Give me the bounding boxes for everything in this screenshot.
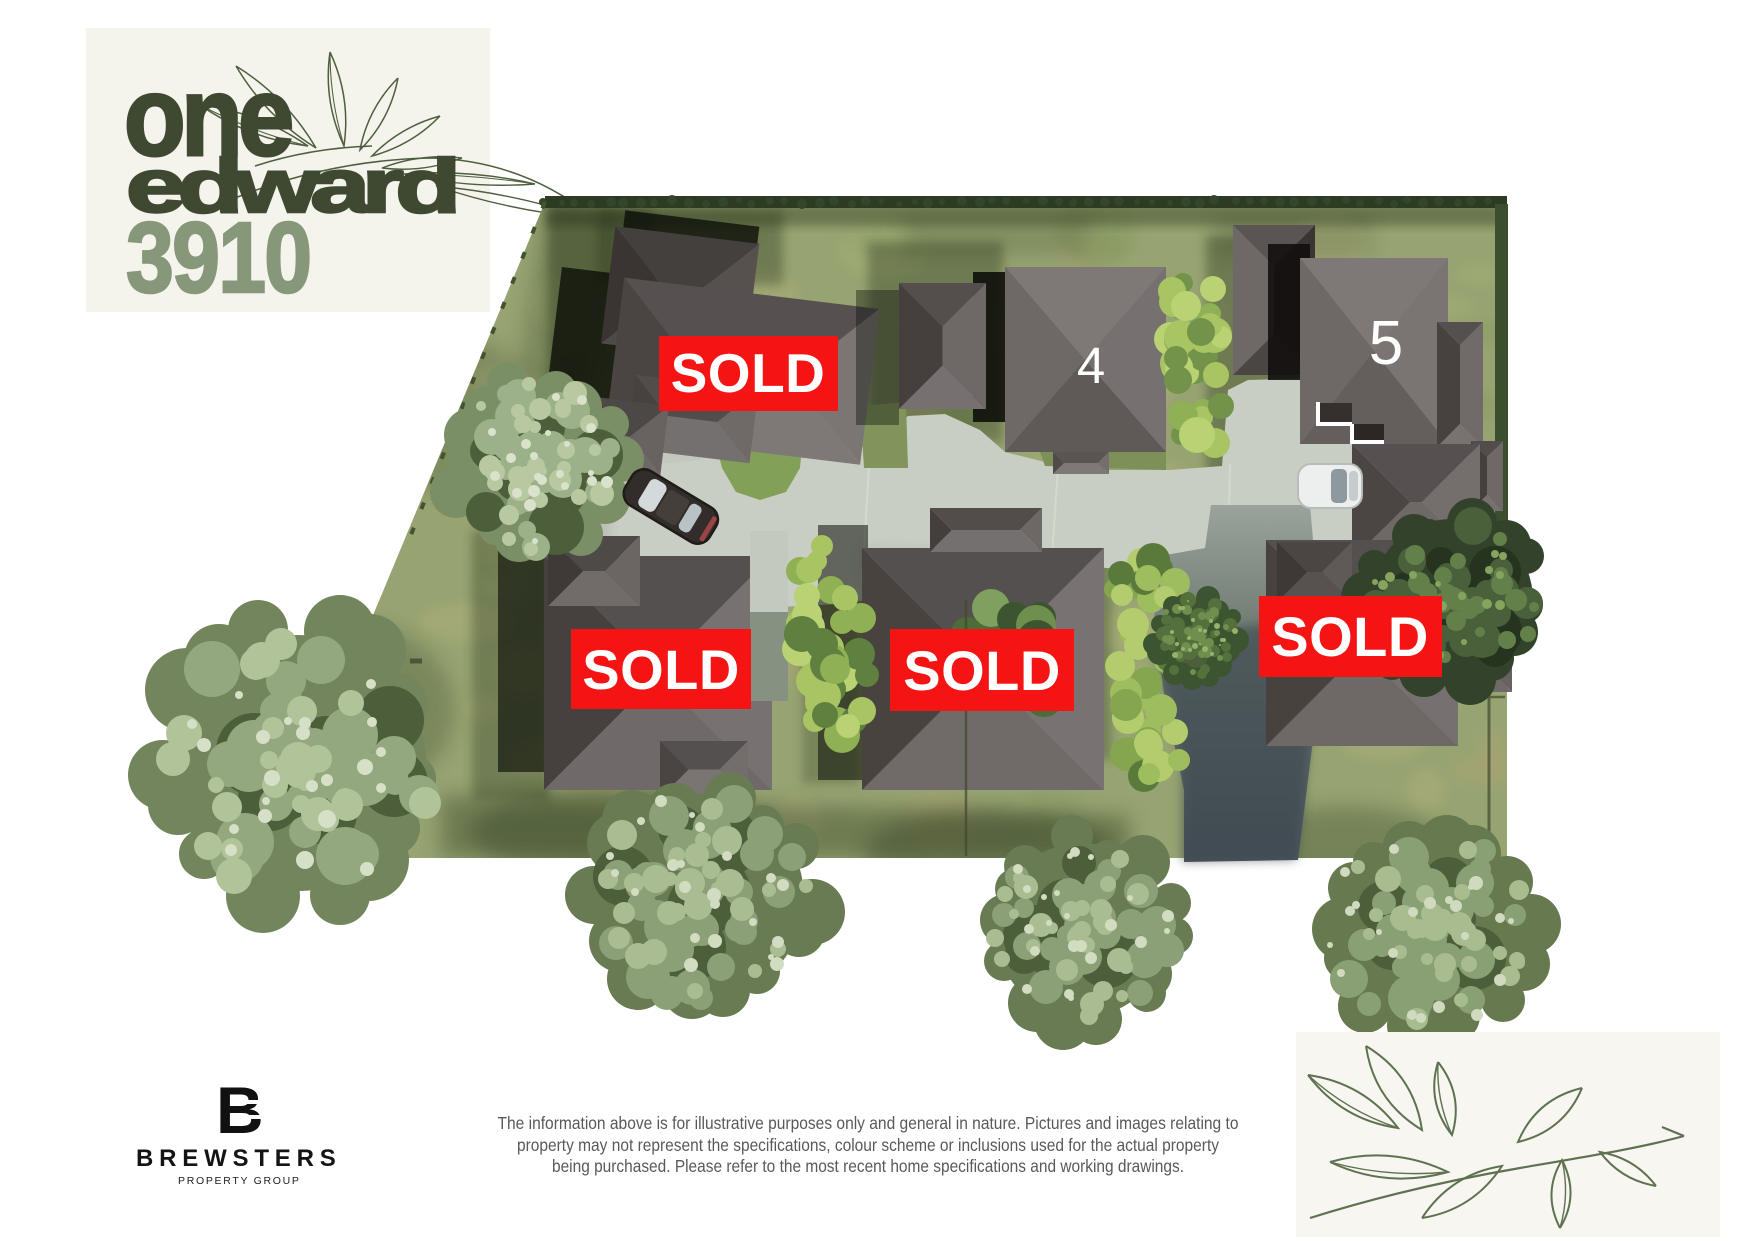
svg-text:property may not represent the: property may not represent the specifica…: [517, 1135, 1219, 1155]
svg-text:SOLD: SOLD: [1271, 605, 1429, 668]
svg-text:SOLD: SOLD: [671, 342, 826, 404]
svg-text:PROPERTY GROUP: PROPERTY GROUP: [178, 1175, 301, 1187]
svg-text:BREWSTERS: BREWSTERS: [136, 1145, 342, 1172]
svg-text:The information above is for i: The information above is for illustrativ…: [498, 1113, 1239, 1133]
svg-text:3910: 3910: [126, 202, 310, 314]
svg-text:B: B: [216, 1073, 264, 1147]
svg-text:SOLD: SOLD: [582, 638, 740, 701]
svg-text:being purchased. Please refer: being purchased. Please refer to the mos…: [552, 1156, 1184, 1176]
svg-text:SOLD: SOLD: [903, 639, 1061, 702]
svg-text:5: 5: [1369, 309, 1403, 378]
svg-text:4: 4: [1077, 337, 1105, 394]
